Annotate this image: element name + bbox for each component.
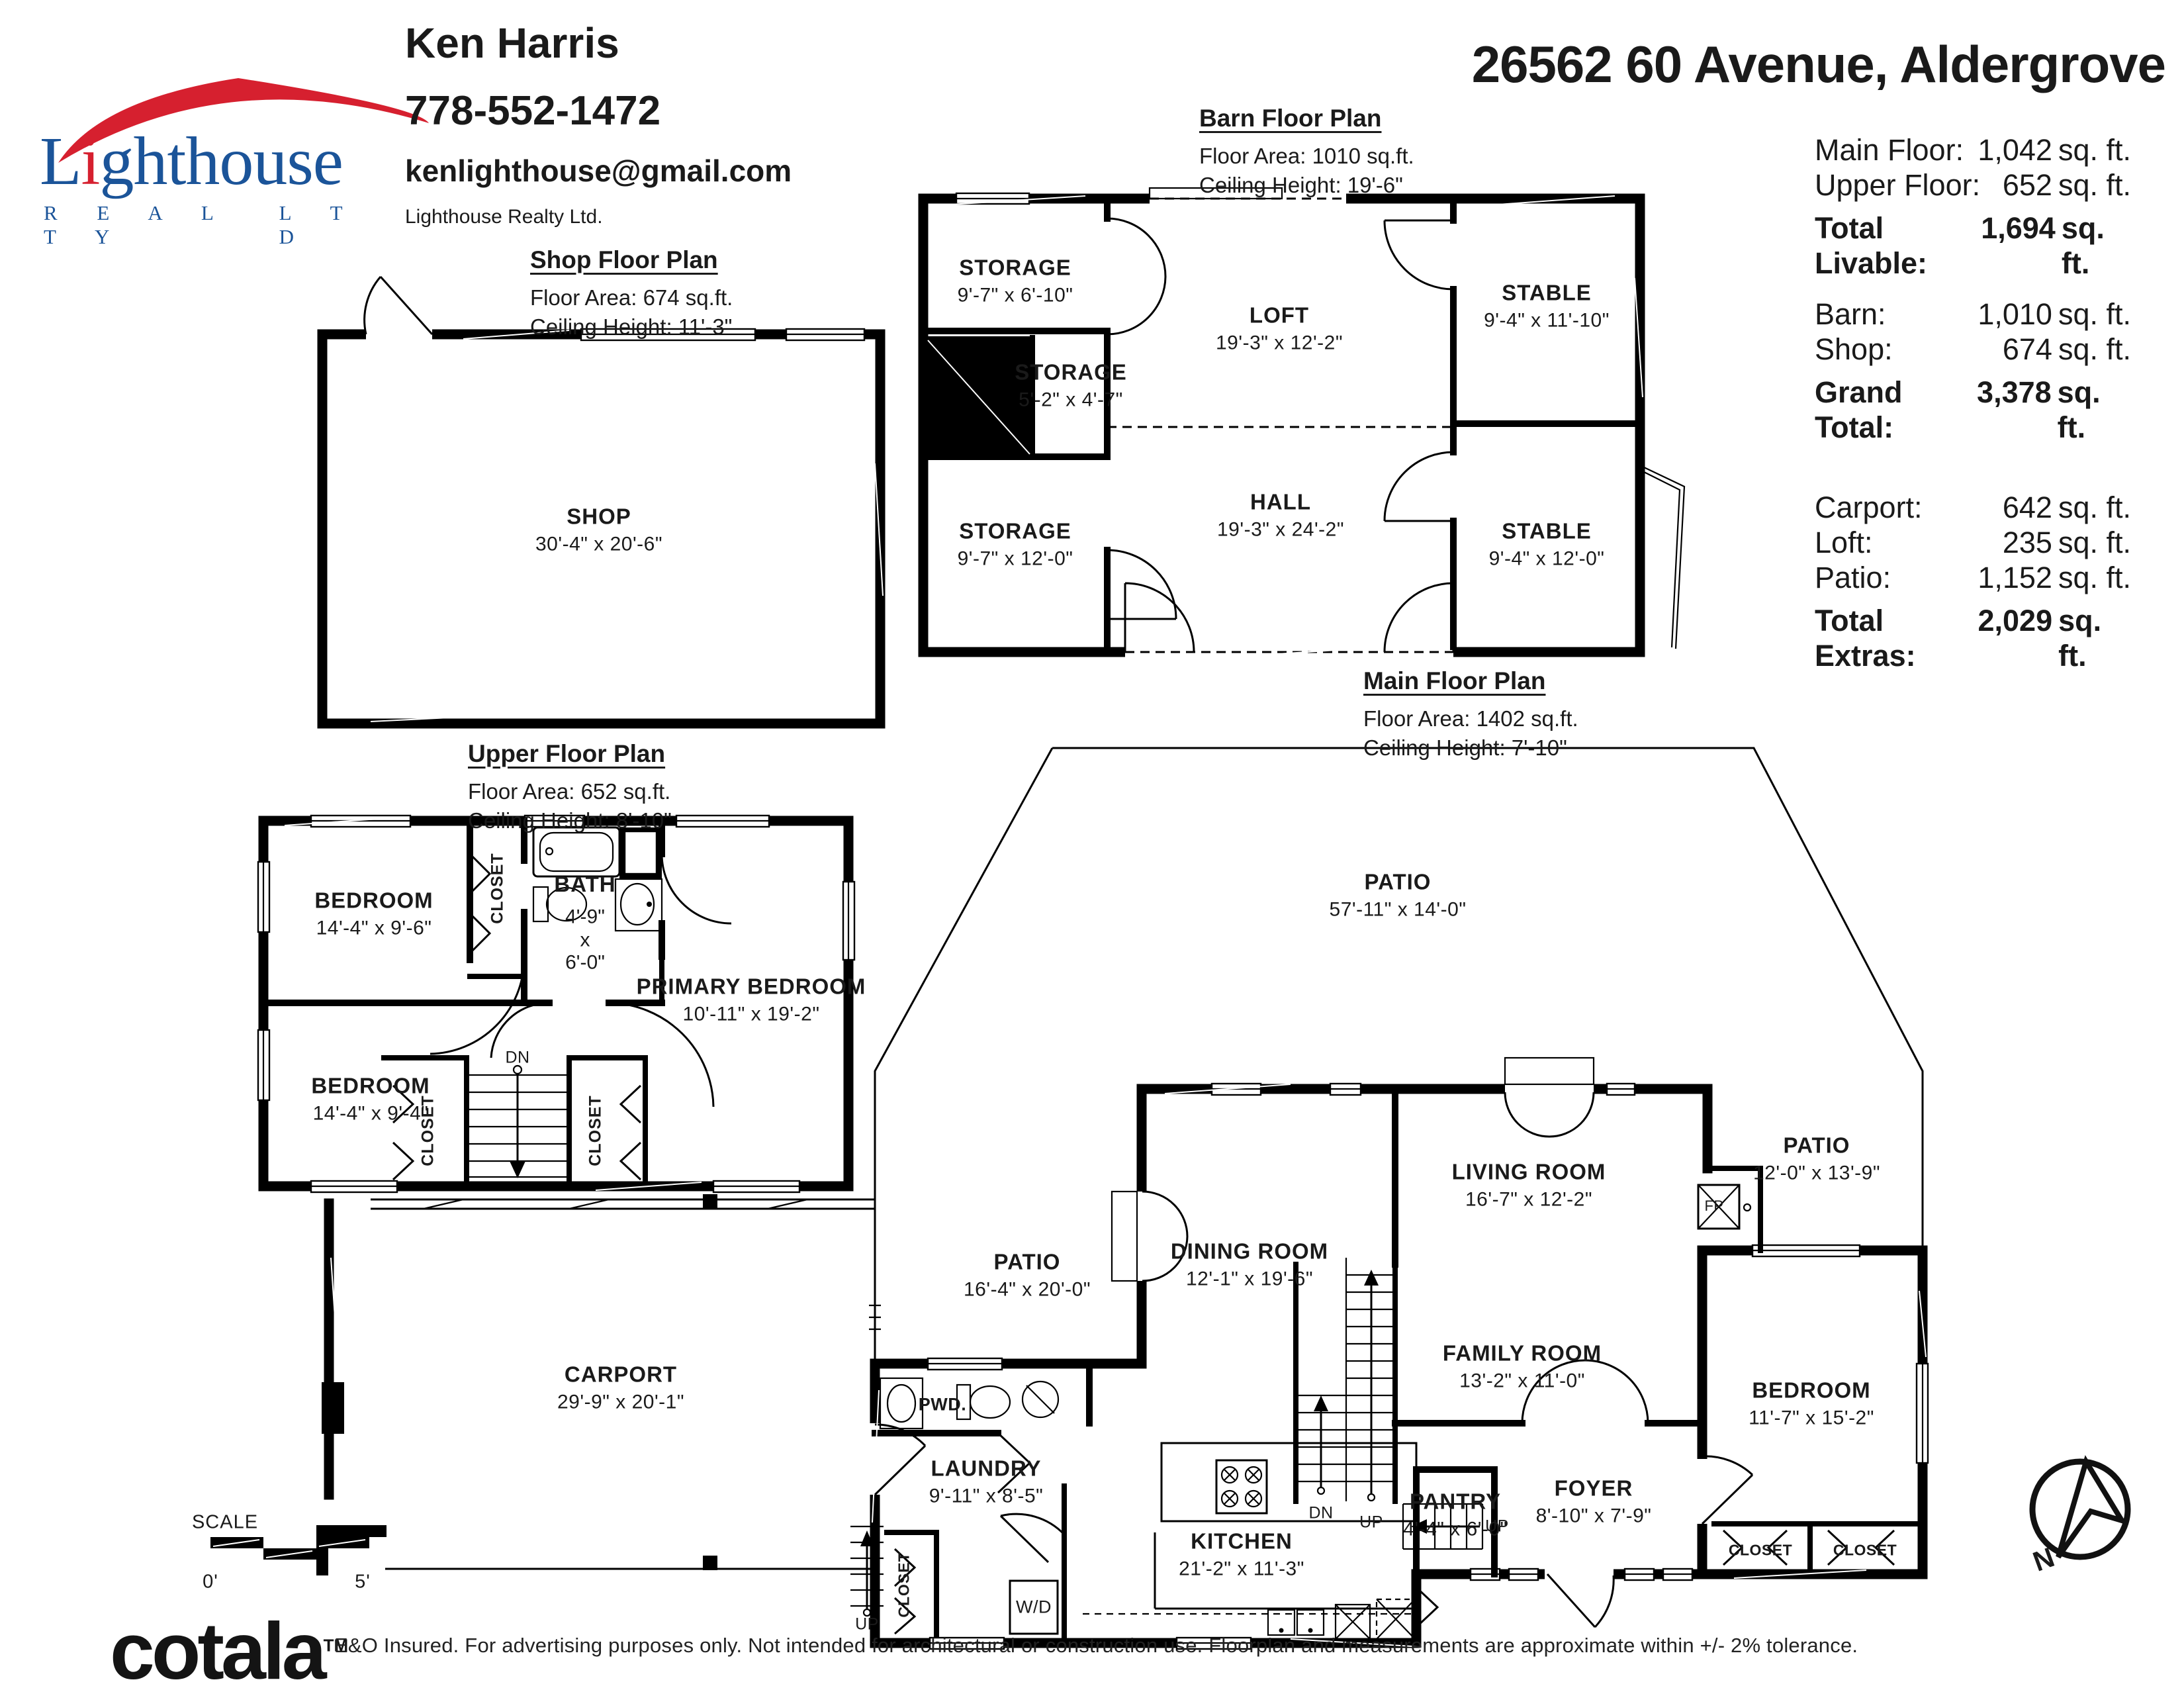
room-label-main-family: FAMILY ROOM 13'-2" x 11'-0" bbox=[1443, 1338, 1602, 1393]
lighthouse-logo-word: Lighthouse bbox=[40, 122, 343, 201]
room-label-upper-bedroom-2: BEDROOM 14'-4" x 9'-4" bbox=[311, 1071, 430, 1126]
agent-phone: 778-552-1472 bbox=[405, 87, 792, 134]
floorplan-sheet: Lighthouse R E A L T YL T D Ken Harris 7… bbox=[0, 0, 2184, 1688]
room-label-barn-hall: HALL 19'-3" x 24'-2" bbox=[1217, 487, 1344, 542]
room-label-main-foyer: FOYER 8'-10" x 7'-9" bbox=[1536, 1474, 1652, 1528]
barn-plan-title: Barn Floor Plan Floor Area: 1010 sq.ft. … bbox=[1199, 105, 1414, 200]
room-label-barn-stable-2: STABLE 9'-4" x 12'-0" bbox=[1489, 516, 1605, 571]
room-label-main-patio-right: PATIO 12'-0" x 13'-9" bbox=[1753, 1131, 1880, 1186]
summary-row: Patio:1,152sq. ft. bbox=[1815, 560, 2131, 595]
agent-company: Lighthouse Realty Ltd. bbox=[405, 206, 792, 228]
room-label-pwd: PWD. bbox=[919, 1395, 967, 1415]
room-label-upper-bath: BATH bbox=[554, 870, 615, 899]
room-label-carport: CARPORT 29'-9" x 20'-1" bbox=[557, 1360, 684, 1415]
footer-disclaimer: E&O Insured. For advertising purposes on… bbox=[334, 1634, 1858, 1658]
summary-row-total-livable: Total Livable:1,694sq. ft. bbox=[1815, 211, 2131, 281]
room-label-main-dining: DINING ROOM 12'-1" x 19'-6" bbox=[1171, 1237, 1328, 1291]
room-label-barn-loft: LOFT 19'-3" x 12'-2" bbox=[1216, 301, 1343, 355]
lighthouse-logo-sub: R E A L T YL T D bbox=[44, 201, 388, 249]
summary-row: Loft:235sq. ft. bbox=[1815, 525, 2131, 560]
area-summary: Main Floor:1,042sq. ft. Upper Floor:652s… bbox=[1815, 132, 2131, 673]
room-label-barn-storage-2: STORAGE 5'-2" x 4'-7" bbox=[1015, 357, 1127, 412]
room-label-upper-bedroom-1: BEDROOM 14'-4" x 9'-6" bbox=[314, 886, 433, 941]
room-label-barn-stable-1: STABLE 9'-4" x 11'-10" bbox=[1484, 278, 1610, 333]
room-label-upper-closet-top: CLOSET bbox=[488, 853, 508, 923]
shop-plan-walls bbox=[322, 277, 883, 724]
agent-name: Ken Harris bbox=[405, 19, 792, 68]
stairs-dn-label-main: DN bbox=[1308, 1504, 1333, 1523]
room-label-main-kitchen: KITCHEN 21'-2" x 11'-3" bbox=[1179, 1526, 1304, 1581]
stairs-up-label-exterior: UP bbox=[855, 1615, 879, 1634]
agent-email: kenlighthouse@gmail.com bbox=[405, 153, 792, 189]
stairs-dn-label-upper: DN bbox=[505, 1049, 529, 1068]
room-label-upper-bath-dims: 4'-9" x 6'-0" bbox=[565, 906, 605, 974]
room-label-upper-closet-br: CLOSET bbox=[586, 1095, 606, 1166]
wd-label: W/D bbox=[1016, 1597, 1052, 1618]
lighthouse-logo: Lighthouse R E A L T YL T D bbox=[16, 64, 406, 209]
summary-row: Main Floor:1,042sq. ft. bbox=[1815, 132, 2131, 167]
property-address: 26562 60 Avenue, Aldergrove bbox=[1472, 34, 2165, 95]
stairs-up-label-main: UP bbox=[1359, 1513, 1383, 1532]
summary-row: Barn:1,010sq. ft. bbox=[1815, 297, 2131, 332]
room-label-main-closet-hall: CLOSET bbox=[895, 1552, 913, 1617]
summary-row-total-extras: Total Extras:2,029sq. ft. bbox=[1815, 603, 2131, 673]
shop-plan-title: Shop Floor Plan Floor Area: 674 sq.ft. C… bbox=[530, 246, 733, 342]
room-label-upper-closet-bl: CLOSET bbox=[419, 1095, 438, 1166]
room-label-main-patio-top: PATIO 57'-11" x 14'-0" bbox=[1330, 867, 1467, 922]
stairs-up-label-side: UP bbox=[1485, 1517, 1509, 1536]
room-label-barn-storage-3: STORAGE 9'-7" x 12'-0" bbox=[958, 516, 1073, 571]
room-label-main-laundry: LAUNDRY 9'-11" x 8'-5" bbox=[929, 1454, 1044, 1509]
scale-end-label: 5' bbox=[355, 1571, 371, 1593]
cotala-logo: cotalaTM bbox=[110, 1605, 348, 1688]
summary-row-grand-total: Grand Total:3,378sq. ft. bbox=[1815, 375, 2131, 445]
summary-row: Upper Floor:652sq. ft. bbox=[1815, 167, 2131, 203]
room-label-main-living: LIVING ROOM 16'-7" x 12'-2" bbox=[1452, 1157, 1606, 1212]
upper-plan-title: Upper Floor Plan Floor Area: 652 sq.ft. … bbox=[468, 740, 672, 835]
room-label-upper-primary-bedroom: PRIMARY BEDROOM 10'-11" x 19'-2" bbox=[637, 972, 866, 1027]
room-label-main-closet-2: CLOSET bbox=[1833, 1542, 1897, 1560]
summary-row: Shop:674sq. ft. bbox=[1815, 332, 2131, 367]
room-label-main-closet-1: CLOSET bbox=[1729, 1542, 1792, 1560]
scale-label: SCALE bbox=[192, 1512, 258, 1534]
scale-start-label: 0' bbox=[203, 1571, 218, 1593]
main-plan-title: Main Floor Plan Floor Area: 1402 sq.ft. … bbox=[1363, 667, 1578, 763]
summary-row: Carport:642sq. ft. bbox=[1815, 490, 2131, 525]
scale-bar bbox=[210, 1537, 369, 1560]
room-label-barn-storage-1: STORAGE 9'-7" x 6'-10" bbox=[958, 253, 1073, 308]
room-label-main-bedroom: BEDROOM 11'-7" x 15'-2" bbox=[1749, 1376, 1874, 1430]
fireplace-label: FP bbox=[1704, 1197, 1723, 1215]
agent-card: Ken Harris 778-552-1472 kenlighthouse@gm… bbox=[405, 19, 792, 228]
room-label-shop: SHOP 30'-4" x 20'-6" bbox=[535, 502, 662, 557]
room-label-main-patio-left: PATIO 16'-4" x 20'-0" bbox=[964, 1247, 1091, 1302]
